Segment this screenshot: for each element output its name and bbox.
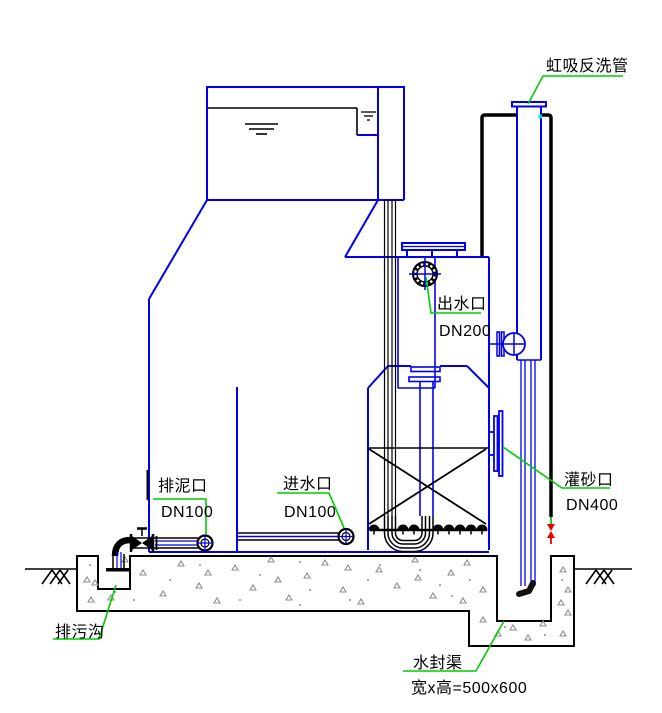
outlet-flange (409, 258, 441, 290)
label-sand-size: DN400 (566, 497, 618, 514)
water-level-symbol-small (361, 112, 376, 120)
label-seal-name: 水封渠 (413, 654, 463, 672)
label-seal-dim: 宽x高=500x600 (411, 679, 527, 697)
underdrain-nozzles (369, 525, 487, 535)
label-outlet-size: DN200 (439, 323, 491, 340)
upper-water-tank (207, 87, 404, 200)
annotations: 虹吸反洗管 出水口 DN200 排泥口 DN100 进水口 DN100 灌砂口 … (55, 57, 629, 697)
pipe-marker-cyan (539, 115, 543, 119)
label-sand-name: 灌砂口 (564, 471, 614, 489)
sand-fill-flange (489, 411, 503, 476)
label-inlet-size: DN100 (284, 504, 336, 521)
downcomer-pipes (385, 200, 396, 516)
label-inlet-name: 进水口 (283, 475, 333, 493)
central-pipe-assembly (398, 257, 440, 516)
top-vent-flange (402, 243, 465, 257)
sludge-pipe-assembly (106, 529, 213, 572)
ground-line-right (574, 569, 632, 584)
u-bend-pipe (385, 516, 434, 552)
inlet-pipe (238, 529, 354, 544)
air-release-valve (547, 517, 555, 544)
leader-lines (53, 76, 623, 671)
label-sludge-size: DN100 (161, 504, 213, 521)
cad-section-drawing: 虹吸反洗管 出水口 DN200 排泥口 DN100 进水口 DN100 灌砂口 … (0, 0, 662, 713)
label-ditch-name: 排污沟 (55, 623, 105, 641)
filter-media-cross (368, 448, 489, 524)
label-sludge-name: 排泥口 (158, 477, 208, 495)
water-level-symbol (245, 124, 278, 134)
ground-line-left (25, 569, 77, 584)
siphon-valve-flange-circle (489, 332, 525, 356)
label-siphon-backwash-pipe: 虹吸反洗管 (546, 57, 629, 75)
label-outlet-name: 出水口 (437, 295, 487, 313)
